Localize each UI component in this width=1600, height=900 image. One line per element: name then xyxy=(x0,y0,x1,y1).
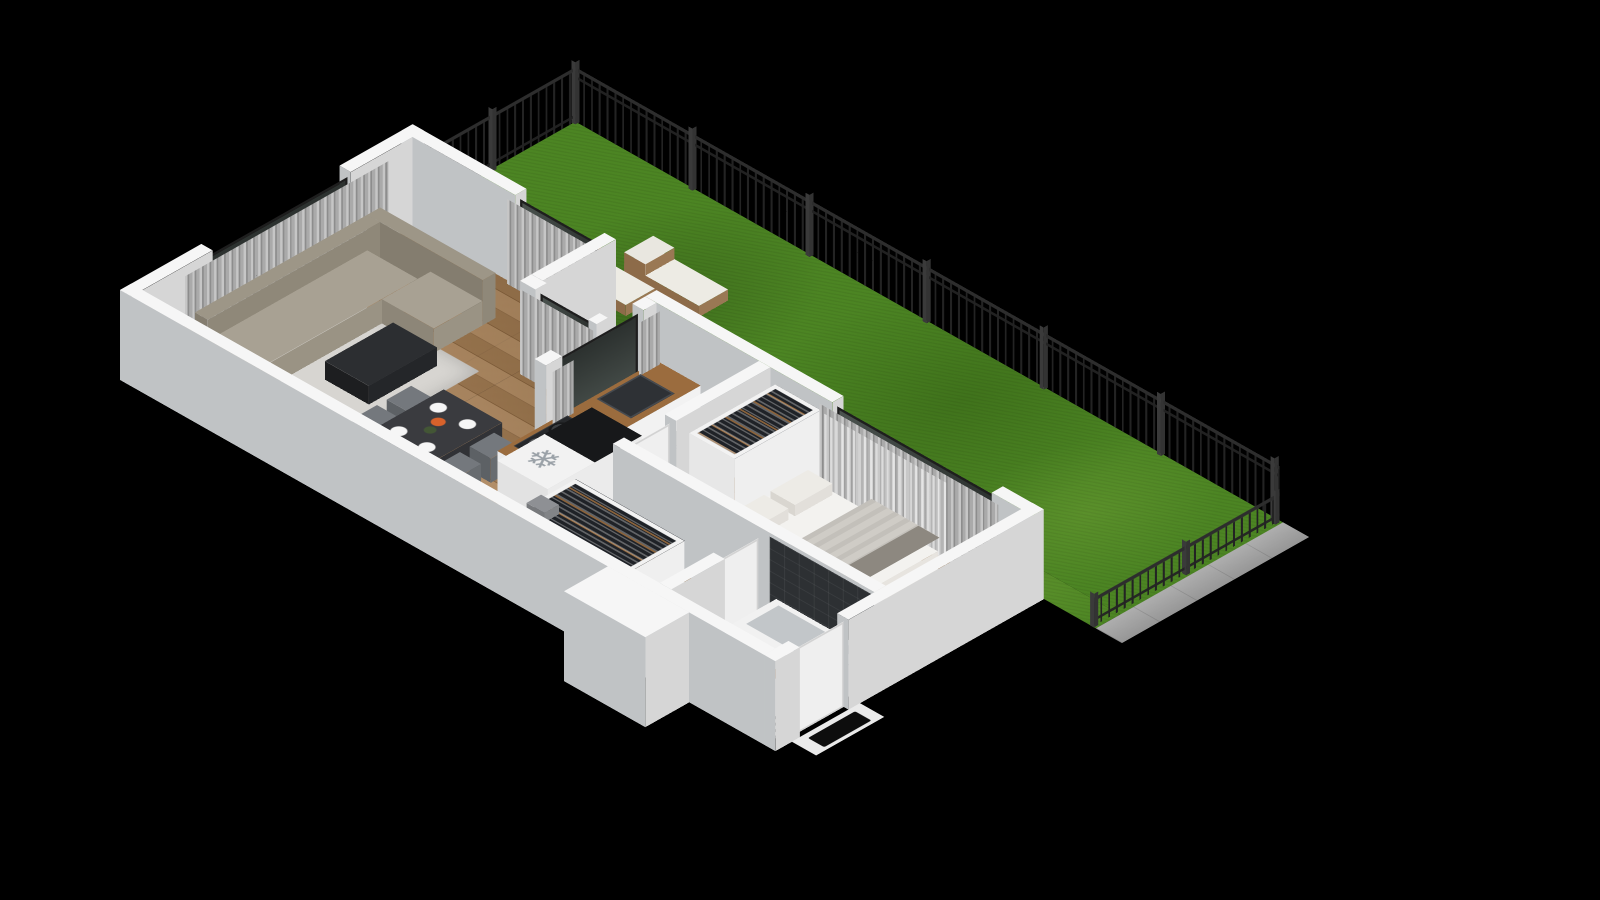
wall-se-a-face-se xyxy=(775,647,799,751)
low-fence-post-3-face-se xyxy=(1276,489,1280,525)
low-fence-post-1-face-se xyxy=(1094,591,1098,627)
floor-plan-render: ❄ xyxy=(0,0,1600,900)
sofa-back-corner-face-se xyxy=(483,273,496,326)
wall-se-a-face-sw xyxy=(764,655,775,751)
fence-post-2-face-se xyxy=(492,107,496,172)
low-fence-post-2-face-se xyxy=(1186,539,1190,575)
